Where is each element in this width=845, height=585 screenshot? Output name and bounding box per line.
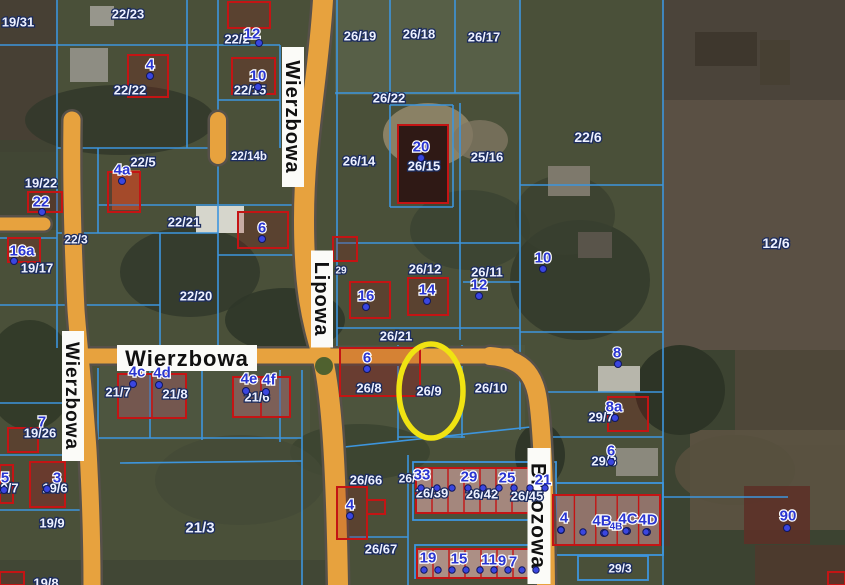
map-canvas[interactable]: WierzbowaLipowaWierzbowaWierzbowaBrzozow… xyxy=(0,0,845,585)
building-point-icon xyxy=(418,485,424,491)
photo-patch xyxy=(196,206,244,233)
street-name: Wierzbowa xyxy=(61,342,82,450)
building-outline xyxy=(0,572,24,585)
building-point-icon xyxy=(542,485,548,491)
building-number: 4f xyxy=(262,371,276,388)
building-point-icon xyxy=(558,527,564,533)
parcel-label: 19/31 xyxy=(2,15,35,30)
parcel-label: 29 xyxy=(335,266,347,277)
parcel-label: 29/3 xyxy=(608,561,632,575)
photo-patch xyxy=(760,40,790,85)
building-point-icon xyxy=(511,485,517,491)
building-number: 10 xyxy=(250,67,267,84)
parcel-label: 19/8 xyxy=(33,576,58,585)
building-number: 29 xyxy=(461,468,478,485)
building-point-icon xyxy=(643,529,649,535)
building-point-icon xyxy=(449,485,455,491)
building-outline xyxy=(228,2,270,28)
parcel-label: 26/18 xyxy=(403,27,436,42)
cadastral-map: WierzbowaLipowaWierzbowaWierzbowaBrzozow… xyxy=(0,0,845,585)
photo-patch xyxy=(155,435,325,525)
parcel-label: 22/6 xyxy=(574,129,601,145)
building-point-icon xyxy=(623,528,629,534)
building-point-icon xyxy=(580,529,586,535)
photo-patch xyxy=(70,48,108,82)
photo-patch xyxy=(695,32,757,66)
parcel-label: 22/3 xyxy=(64,232,88,246)
building-number: 4C xyxy=(618,510,637,527)
parcel-label: 26/9 xyxy=(416,384,441,399)
building-number: 4a xyxy=(114,161,131,178)
building-point-icon xyxy=(256,40,263,47)
parcel-label: 19/22 xyxy=(25,176,58,191)
building-point-icon xyxy=(1,487,8,494)
photo-patch xyxy=(548,166,590,196)
street-name: Wierzbowa xyxy=(281,60,303,173)
parcel-label: 26/67 xyxy=(365,542,398,557)
building-point-icon xyxy=(491,567,497,573)
parcel-label: 26/22 xyxy=(373,91,406,106)
building-number: 4c xyxy=(129,363,146,380)
street-label-brzozowa: Brzozowa xyxy=(526,448,550,584)
building-number: 15 xyxy=(451,550,468,567)
building-point-icon xyxy=(418,155,425,162)
building-number: 10 xyxy=(535,249,552,266)
building-point-icon xyxy=(519,567,525,573)
building-point-icon xyxy=(263,389,270,396)
parcel-label: 26/14 xyxy=(343,154,376,169)
building-number: 4 xyxy=(560,509,569,526)
building-number: 6 xyxy=(607,442,615,459)
parcel-label: 22/23 xyxy=(112,7,145,22)
parcel-label: 26/15 xyxy=(408,159,441,174)
building-number: 19 xyxy=(420,549,437,566)
parcel-label: 26/8 xyxy=(356,381,381,396)
photo-patch xyxy=(616,448,658,476)
street-name: Lipowa xyxy=(310,262,332,337)
parcel-label: 21/8 xyxy=(162,387,187,402)
photo-patch xyxy=(335,0,520,95)
street-label-lipowa: Lipowa xyxy=(310,251,333,348)
building-point-icon xyxy=(463,567,469,573)
building-number: 4e xyxy=(241,370,258,387)
building-point-icon xyxy=(615,361,622,368)
photo-patch xyxy=(598,366,640,392)
building-point-icon xyxy=(505,567,511,573)
building-point-icon xyxy=(540,266,547,273)
building-point-icon xyxy=(255,84,262,91)
building-point-icon xyxy=(156,382,163,389)
parcel-label: 22/21 xyxy=(168,215,201,230)
parcel-label: 26/12 xyxy=(409,262,442,277)
building-point-icon xyxy=(243,388,250,395)
parcel-label: 22/20 xyxy=(180,289,213,304)
building-point-icon xyxy=(496,485,502,491)
parcel-label: 26/21 xyxy=(380,329,413,344)
building-point-icon xyxy=(147,73,154,80)
parcel-label: 26/17 xyxy=(468,30,501,45)
building-point-icon xyxy=(533,567,539,573)
building-point-icon xyxy=(449,567,455,573)
building-number: 11 xyxy=(481,551,497,568)
building-number: 22 xyxy=(33,193,50,210)
building-number: 14 xyxy=(419,281,436,298)
building-number: 16a xyxy=(9,242,35,259)
building-number: 16 xyxy=(358,287,375,304)
building-point-icon xyxy=(364,366,371,373)
building-number: 8a xyxy=(606,398,623,415)
building-point-icon xyxy=(435,567,441,573)
building-number: 4 xyxy=(346,496,355,513)
parcel-label: 19/9 xyxy=(39,516,64,531)
building-point-icon xyxy=(259,236,266,243)
tree-over-street xyxy=(315,357,333,375)
photo-patch xyxy=(578,232,612,258)
building-number: 90 xyxy=(780,507,797,524)
building-number: 25 xyxy=(499,469,516,486)
parcel-label: 21/7 xyxy=(105,385,130,400)
building-point-icon xyxy=(424,298,431,305)
street-label-wierzbowa: Wierzbowa xyxy=(61,331,84,461)
building-point-icon xyxy=(476,293,483,300)
parcel-label: 19/17 xyxy=(21,261,54,276)
building-point-icon xyxy=(347,513,354,520)
photo-patch xyxy=(90,6,114,26)
building-point-icon xyxy=(39,209,46,216)
building-point-icon xyxy=(612,415,619,422)
parcel-label: 12/6 xyxy=(762,235,789,251)
building-point-icon xyxy=(44,486,51,493)
building-number: 4 xyxy=(146,56,155,73)
building-point-icon xyxy=(363,304,370,311)
parcel-label: 26/19 xyxy=(344,29,377,44)
parcel-label: 26/66 xyxy=(350,473,383,488)
building-point-icon xyxy=(119,178,126,185)
building-number: 4d xyxy=(153,364,171,381)
building-number: 9 xyxy=(498,552,506,569)
building-outline xyxy=(828,572,845,585)
building-number: 3 xyxy=(53,469,61,486)
building-number: 7 xyxy=(38,413,46,430)
building-point-icon xyxy=(527,485,533,491)
parcel-label: 25/16 xyxy=(471,150,504,165)
photo-patch xyxy=(744,486,810,544)
building-point-icon xyxy=(784,525,791,532)
building-number: 4D xyxy=(638,511,657,528)
parcel-label: 21/3 xyxy=(185,519,214,536)
parcel-label: 22/14b xyxy=(231,151,267,163)
building-point-icon xyxy=(11,258,18,265)
building-outline xyxy=(367,500,385,514)
building-point-icon xyxy=(477,567,483,573)
building-number: 33 xyxy=(414,466,431,483)
building-number: 20 xyxy=(413,138,430,155)
building-outline xyxy=(333,237,357,261)
parcel-label: 22/22 xyxy=(114,83,147,98)
building-number: 8 xyxy=(613,344,621,361)
building-point-icon xyxy=(480,485,486,491)
building-number: 12 xyxy=(471,276,488,293)
parcel-label: 26/10 xyxy=(475,381,508,396)
building-number: 6 xyxy=(258,219,266,236)
building-point-icon xyxy=(465,485,471,491)
street-label-wierzbowa: Wierzbowa xyxy=(281,47,304,187)
building-point-icon xyxy=(608,459,615,466)
building-point-icon xyxy=(434,485,440,491)
building-point-icon xyxy=(602,530,608,536)
parcel-label: 22/5 xyxy=(130,155,155,170)
building-point-icon xyxy=(421,567,427,573)
building-point-icon xyxy=(130,381,137,388)
building-number: 6 xyxy=(363,349,371,366)
building-number: 5 xyxy=(1,469,9,486)
